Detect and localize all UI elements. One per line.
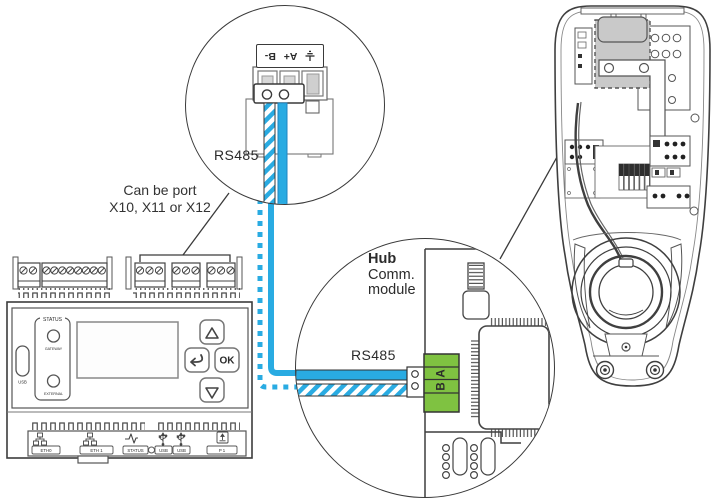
vent-comb (18, 288, 110, 298)
pin-b-minus: B- (265, 50, 276, 62)
left-column-dot (578, 54, 582, 58)
comm-module-top (598, 17, 647, 42)
charger-top-bar (581, 8, 684, 14)
bottom-screw-right (647, 362, 664, 379)
terminal-strip (619, 164, 649, 190)
left-column-component (575, 28, 592, 84)
connector-shroud (246, 99, 333, 154)
terminal-pin-b: B (436, 382, 448, 390)
up-button (200, 320, 224, 344)
gateway-controller: USB STATUS GATEWAY EXTERNAL OK (5, 250, 255, 470)
svg-text:OK: OK (220, 356, 236, 367)
hub-zoom-circle: A B Hub Comm. module RS485 (295, 238, 555, 498)
wire-striped (296, 384, 407, 396)
port-label: P 1 (219, 448, 226, 453)
ev-charger-cutaway (545, 0, 716, 392)
hub-title-line2: Comm. (368, 268, 416, 284)
port-callout-text: Can be port X10, X11 or X12 (95, 182, 225, 216)
wiring-diagram: USB STATUS GATEWAY EXTERNAL OK (0, 0, 716, 504)
lcd-display (77, 322, 178, 378)
bracket-screw-hole (640, 64, 649, 73)
hub-title-line3: module (368, 283, 416, 299)
socket-screw-dot (625, 346, 628, 349)
solder-pads (443, 438, 495, 478)
port-label: ETH 1 (90, 448, 103, 453)
connector-pin-label: A+ B- (256, 44, 324, 68)
bottom-screw-left (597, 362, 614, 379)
terminal-pin-a: A (436, 369, 448, 377)
rs485-label-top: RS485 (214, 147, 259, 163)
pin-a-plus: A+ (284, 50, 298, 62)
rs485-connector (186, 6, 385, 205)
vent-comb (158, 420, 240, 430)
antenna (463, 263, 489, 319)
usb-side-port (16, 346, 29, 376)
port-label: USB (159, 448, 168, 453)
hub-title-line1: Hub (368, 252, 416, 268)
plug-terminal-hole (279, 90, 288, 99)
bracket-screw-hole (605, 64, 614, 73)
terminal-screw (412, 383, 419, 390)
port-label: STATUS (127, 448, 143, 453)
callout-line2: X10, X11 or X12 (95, 199, 225, 216)
vent-comb (30, 420, 145, 430)
vent-comb (133, 288, 240, 298)
rs485-label-hub: RS485 (351, 347, 396, 363)
plug-terminal-hole (262, 90, 271, 99)
rs485-zoom-circle: A+ B- RS485 (185, 5, 385, 205)
port-label: ETH0 (41, 448, 53, 453)
gateway-led (48, 330, 60, 342)
down-button (200, 378, 224, 402)
terminal-block-2pin (18, 263, 40, 287)
wire-blue (278, 103, 287, 205)
hub-module-board: A B (296, 239, 555, 498)
left-column-dot (578, 64, 582, 68)
wire-striped (264, 103, 275, 205)
external-led (48, 375, 60, 387)
usb-side-label: USB (18, 380, 27, 385)
ok-button: OK (215, 348, 239, 372)
hub-module-title: Hub Comm. module (368, 252, 416, 299)
port-label: USB (177, 448, 186, 453)
status-legend: STATUS (43, 317, 63, 323)
rs485-terminal-green: A B (424, 354, 459, 412)
terminal-block-9pin (42, 263, 107, 287)
return-button (185, 348, 209, 372)
connector-latch (306, 101, 319, 113)
gateway-led-label: GATEWAY (45, 347, 63, 351)
terminal-screw (412, 371, 419, 378)
din-clip-tab (78, 456, 108, 463)
ground-icon (305, 51, 315, 62)
wire-blue (296, 370, 407, 380)
callout-line1: Can be port (95, 182, 225, 199)
mcu-chip (471, 318, 551, 437)
status-port-led (149, 447, 155, 453)
external-led-label: EXTERNAL (44, 392, 63, 396)
